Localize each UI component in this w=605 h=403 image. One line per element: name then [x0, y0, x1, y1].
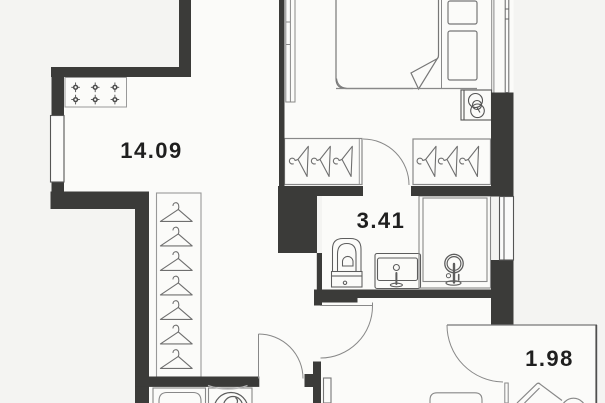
svg-text:14.09: 14.09 [120, 138, 183, 163]
svg-text:3.41: 3.41 [357, 208, 406, 233]
svg-text:1.98: 1.98 [525, 346, 574, 371]
